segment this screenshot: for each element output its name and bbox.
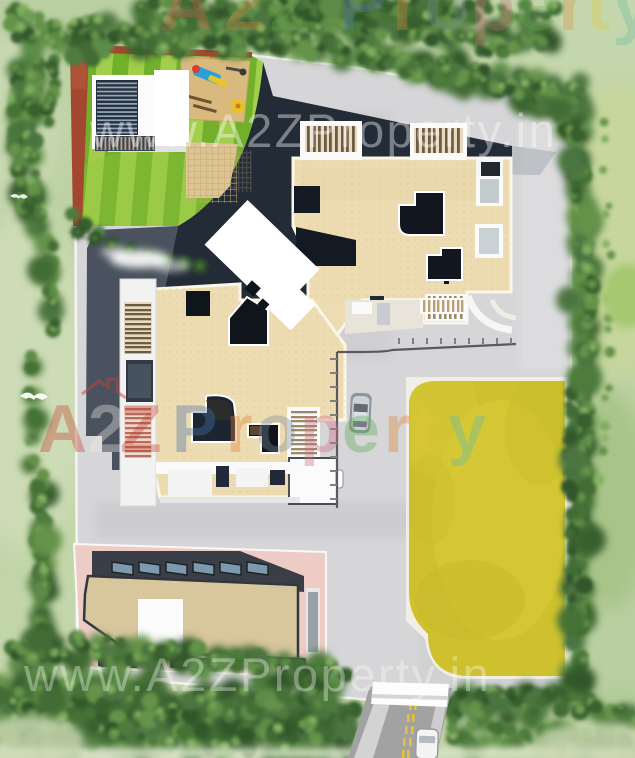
svg-text:Z: Z xyxy=(270,0,315,46)
svg-text:www.A2ZProperty.in: www.A2ZProperty.in xyxy=(89,104,557,157)
svg-text:r: r xyxy=(558,0,587,46)
svg-text:t: t xyxy=(586,0,611,46)
svg-text:P: P xyxy=(338,0,387,46)
svg-text:P: P xyxy=(172,391,217,467)
svg-text:www.A2ZProperty.in: www.A2ZProperty.in xyxy=(23,648,491,701)
svg-text:e: e xyxy=(516,0,557,46)
svg-text:p: p xyxy=(300,391,342,467)
svg-text:t: t xyxy=(412,391,435,467)
svg-text:p: p xyxy=(470,0,515,46)
svg-text:r: r xyxy=(392,0,421,46)
svg-text:y: y xyxy=(612,0,635,46)
svg-text:2: 2 xyxy=(224,0,265,46)
svg-text:o: o xyxy=(256,391,298,467)
svg-text:r: r xyxy=(384,391,410,467)
svg-text:r: r xyxy=(226,391,252,467)
svg-text:e: e xyxy=(342,391,380,467)
svg-text:y: y xyxy=(448,391,486,467)
svg-text:Z: Z xyxy=(120,391,162,467)
svg-text:A: A xyxy=(160,0,213,46)
svg-text:o: o xyxy=(424,0,469,46)
svg-text:A: A xyxy=(38,391,87,467)
